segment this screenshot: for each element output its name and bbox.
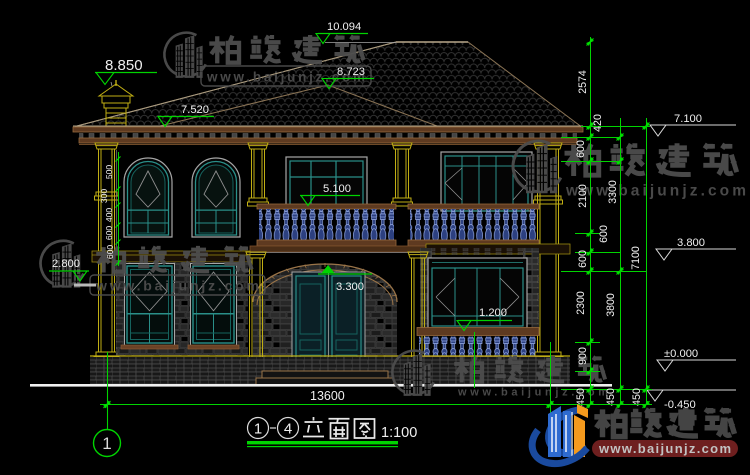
svg-text:500: 500 [104,165,114,180]
svg-text:2100: 2100 [577,184,589,208]
svg-text:400: 400 [104,208,114,223]
svg-text:5.100: 5.100 [323,183,351,195]
svg-text:2300: 2300 [575,291,587,315]
svg-text:300: 300 [99,189,109,204]
svg-text:13600: 13600 [310,389,345,403]
svg-text:3.800: 3.800 [677,237,705,249]
svg-text:7.100: 7.100 [674,113,702,125]
svg-text:3.300: 3.300 [336,281,364,293]
svg-text:4: 4 [284,421,292,438]
svg-text:7.520: 7.520 [181,104,209,116]
svg-text:-0.450: -0.450 [664,399,696,411]
svg-text:600: 600 [598,225,610,243]
svg-text:10.094: 10.094 [327,21,361,33]
svg-text:3800: 3800 [605,293,617,317]
svg-text:450: 450 [575,388,587,406]
svg-text:1.200: 1.200 [479,307,507,319]
svg-text:600: 600 [104,226,114,241]
svg-text:450: 450 [605,388,617,406]
svg-text:2.800: 2.800 [52,258,80,270]
svg-text:600: 600 [105,245,115,260]
svg-text:1:100: 1:100 [381,425,417,441]
svg-text:420: 420 [592,114,604,132]
svg-text:450: 450 [631,388,643,406]
svg-text:www.baijunjz.com: www.baijunjz.com [598,441,731,456]
svg-text:2574: 2574 [577,70,589,94]
svg-text:600: 600 [577,250,589,268]
svg-text:7100: 7100 [630,246,642,270]
svg-text:±0.000: ±0.000 [664,348,698,360]
svg-text:8.723: 8.723 [337,66,365,78]
svg-text:600: 600 [575,140,587,158]
svg-text:900: 900 [577,347,589,365]
svg-text:8.850: 8.850 [105,57,143,74]
svg-text:1: 1 [102,434,111,453]
svg-text:1: 1 [254,421,262,438]
svg-text:3300: 3300 [607,180,619,204]
